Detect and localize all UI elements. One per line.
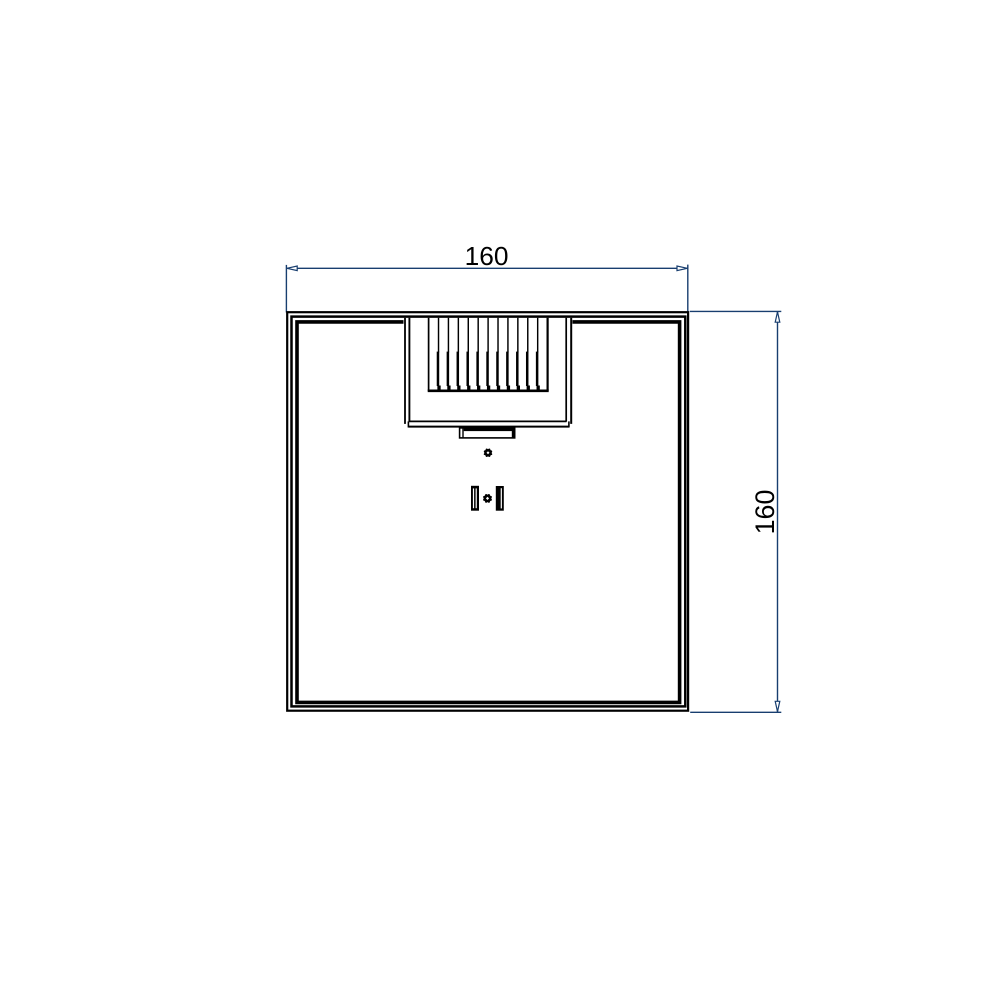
svg-text:160: 160 [750,490,780,535]
svg-text:160: 160 [465,241,509,271]
